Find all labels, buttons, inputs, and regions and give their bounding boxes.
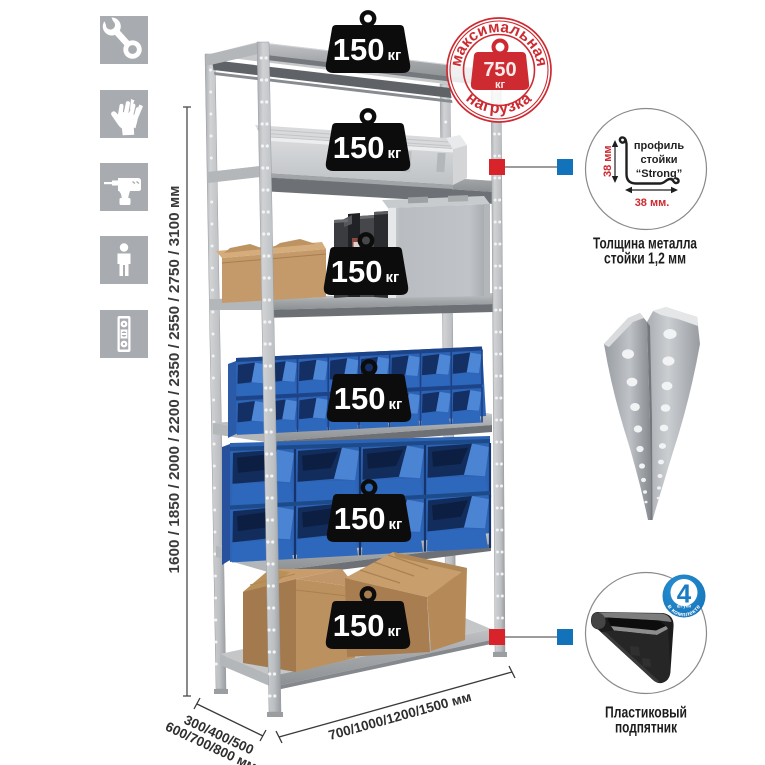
svg-text:стойки: стойки [640, 154, 677, 166]
svg-text:стойки 1,2 мм: стойки 1,2 мм [604, 251, 686, 268]
svg-text:подпятник: подпятник [615, 720, 678, 737]
svg-text:“Strong”: “Strong” [636, 168, 682, 180]
svg-text:1600 / 1850 / 2000 / 2200 / 23: 1600 / 1850 / 2000 / 2200 / 2350 / 2550 … [166, 186, 183, 574]
svg-text:кг: кг [495, 79, 506, 91]
svg-text:750: 750 [483, 59, 516, 81]
svg-text:38 мм.: 38 мм. [635, 197, 670, 209]
svg-text:38 мм: 38 мм [602, 145, 614, 177]
svg-text:штуки: штуки [677, 603, 691, 608]
svg-text:профиль: профиль [634, 140, 684, 152]
